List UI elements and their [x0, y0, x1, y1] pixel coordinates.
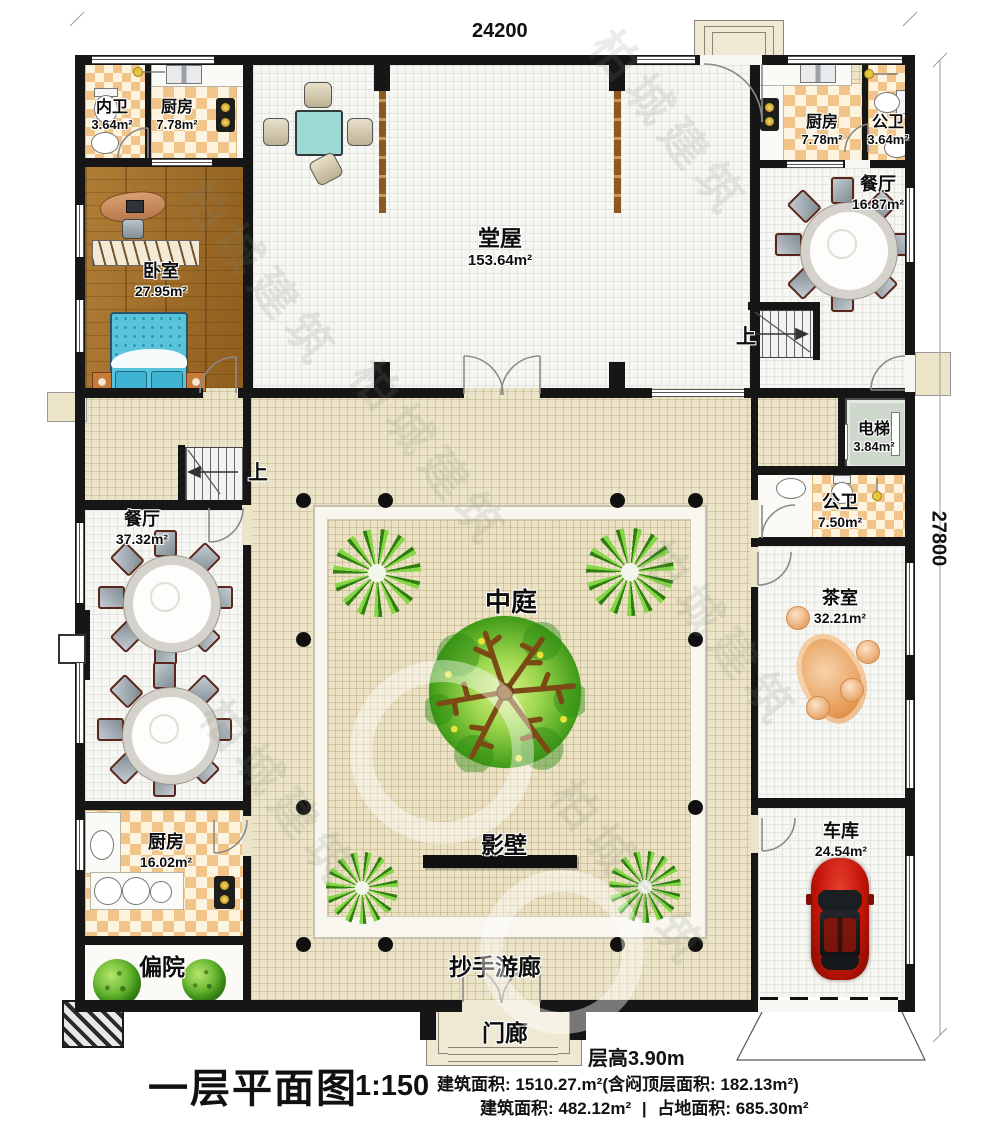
room-label-public-bath-right: 公卫7.50m²: [818, 492, 862, 530]
floor-plan: 内卫3.64m² 厨房7.78m² 堂屋153.64m² 厨房7.78m² 公卫…: [0, 0, 1000, 1121]
building-area-line2: 建筑面积: 482.12m² | 占地面积: 685.30m²: [480, 1094, 809, 1119]
stairs-up-label: 上: [248, 456, 268, 485]
room-label-public-bath-top: 公卫3.64m²: [867, 113, 908, 148]
side-yard-label: 偏院: [139, 948, 185, 982]
stairs-up-label: 上: [736, 320, 756, 349]
screen-wall-label: 影壁: [481, 826, 527, 860]
courtyard-label: 中庭: [485, 582, 537, 619]
room-label-kitchen-tl: 厨房7.78m²: [156, 98, 197, 133]
room-label-garage: 车库24.54m²: [815, 821, 867, 859]
room-label-dining-right: 餐厅16.87m²: [852, 174, 904, 212]
plan-title: 一层平面图: [148, 1056, 358, 1114]
plan-scale: 1:150: [355, 1070, 429, 1103]
building-area: 建筑面积: 482.12m²: [480, 1099, 631, 1118]
faucet-icon: [134, 68, 143, 77]
room-label-tea-room: 茶室32.21m²: [814, 588, 866, 626]
faucet-icon: [865, 70, 874, 79]
shower-icon: [873, 492, 882, 501]
room-label-main-hall: 堂屋153.64m²: [468, 226, 532, 270]
porch-label: 门廊: [482, 1014, 528, 1048]
divider: |: [642, 1099, 647, 1118]
dimension-top: 24200: [472, 20, 528, 43]
fixture-details: [140, 72, 898, 493]
stair-ramp-lines: [188, 312, 925, 1060]
veranda-label: 抄手游廊: [449, 948, 541, 982]
door-swings: [118, 64, 905, 1003]
room-label-kitchen-bl: 厨房16.02m²: [140, 832, 192, 870]
land-area: 占地面积: 685.30m²: [657, 1099, 808, 1118]
room-label-elevator: 电梯3.84m²: [853, 420, 894, 455]
stair-arrows: [189, 329, 807, 477]
dimension-right: 27800: [927, 504, 950, 574]
room-label-bedroom: 卧室27.95m²: [135, 261, 187, 299]
room-label-inner-bath: 内卫3.64m²: [91, 98, 132, 133]
room-label-kitchen-tr: 厨房7.78m²: [801, 113, 842, 148]
room-label-dining-left: 餐厅37.32m²: [116, 509, 168, 547]
building-area-line1: 建筑面积: 1510.27.m²(含闷顶层面积: 182.13m²): [437, 1070, 799, 1095]
dimension-lines: [70, 12, 947, 1042]
floor-height-label: 层高3.90m: [588, 1042, 685, 1071]
